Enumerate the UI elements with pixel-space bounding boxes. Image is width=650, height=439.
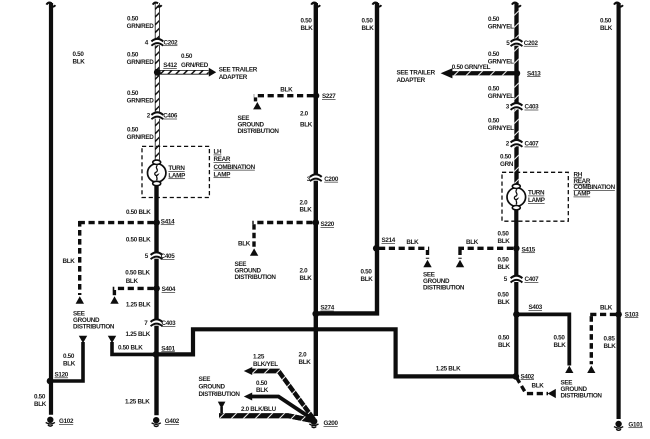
svg-text:BLK: BLK [604, 343, 617, 350]
svg-text:BLK: BLK [600, 304, 613, 311]
svg-text:REAR: REAR [214, 156, 231, 163]
svg-text:SEE TRAILER: SEE TRAILER [219, 67, 258, 74]
svg-text:DISTRIBUTION: DISTRIBUTION [199, 391, 241, 398]
svg-text:GRN/YEL: GRN/YEL [488, 24, 514, 31]
svg-text:S120: S120 [55, 372, 69, 379]
svg-text:LAMP: LAMP [574, 191, 591, 198]
svg-text:GRN: GRN [500, 161, 514, 168]
svg-text:BLK: BLK [406, 239, 419, 246]
svg-text:S401: S401 [161, 345, 175, 352]
svg-text:C405: C405 [161, 253, 176, 260]
svg-text:0.50: 0.50 [488, 16, 500, 23]
svg-text:0.50: 0.50 [256, 380, 268, 387]
svg-text:S220: S220 [321, 221, 335, 228]
svg-text:0.50: 0.50 [361, 269, 373, 276]
svg-text:0.50 BLK: 0.50 BLK [126, 236, 151, 243]
svg-text:BLK: BLK [498, 299, 511, 306]
svg-text:BLK: BLK [238, 240, 251, 247]
svg-text:C202: C202 [164, 39, 179, 46]
svg-text:0.50: 0.50 [34, 394, 46, 401]
svg-text:C403: C403 [525, 104, 540, 111]
svg-text:0.50: 0.50 [498, 230, 510, 237]
svg-text:TURN: TURN [168, 165, 185, 172]
svg-text:0.50: 0.50 [488, 51, 500, 58]
svg-text:LAMP: LAMP [528, 197, 545, 204]
svg-text:GRN/RED: GRN/RED [127, 134, 155, 141]
svg-text:SEE TRAILER: SEE TRAILER [397, 70, 436, 77]
svg-text:2.0: 2.0 [300, 200, 309, 207]
svg-text:0.50: 0.50 [362, 18, 374, 25]
svg-text:BLK: BLK [301, 25, 314, 32]
svg-text:G402: G402 [165, 418, 180, 425]
svg-text:BLK: BLK [126, 278, 139, 285]
svg-text:DISTRIBUTION: DISTRIBUTION [73, 324, 115, 331]
svg-text:0.50: 0.50 [181, 53, 193, 60]
svg-text:0.50: 0.50 [127, 16, 139, 23]
svg-text:LAMP: LAMP [214, 171, 231, 178]
svg-text:GRN/YEL: GRN/YEL [488, 125, 514, 132]
svg-text:G101: G101 [628, 421, 643, 428]
svg-text:LAMP: LAMP [168, 172, 185, 179]
svg-text:0.50: 0.50 [498, 257, 510, 264]
svg-text:0.85: 0.85 [604, 336, 616, 343]
svg-text:BLK/YEL: BLK/YEL [253, 361, 278, 368]
svg-text:TURN: TURN [528, 190, 545, 197]
svg-text:GRN/RED: GRN/RED [127, 23, 155, 30]
svg-text:0.50 GRN/YEL: 0.50 GRN/YEL [452, 64, 491, 71]
svg-text:BLK: BLK [498, 238, 511, 245]
svg-text:BLK: BLK [300, 121, 313, 128]
svg-text:0.50 BLK: 0.50 BLK [125, 269, 150, 276]
svg-text:BLK: BLK [299, 359, 312, 366]
svg-text:0.50: 0.50 [498, 292, 510, 299]
svg-text:BLK: BLK [300, 275, 313, 282]
svg-text:C407: C407 [525, 276, 540, 283]
svg-text:S214: S214 [382, 237, 396, 244]
svg-text:GRN/YEL: GRN/YEL [488, 93, 514, 100]
svg-text:ADAPTER: ADAPTER [397, 77, 426, 84]
svg-text:BLK: BLK [300, 207, 313, 214]
svg-text:GROUND: GROUND [199, 383, 226, 390]
svg-text:GRN/RED: GRN/RED [181, 62, 209, 69]
svg-text:BLK: BLK [498, 342, 511, 349]
svg-text:BLK: BLK [554, 342, 567, 349]
svg-text:ADAPTER: ADAPTER [219, 74, 248, 81]
svg-text:0.50: 0.50 [488, 86, 500, 93]
svg-text:BLK: BLK [73, 59, 86, 66]
svg-text:S404: S404 [162, 286, 176, 293]
svg-text:0.50: 0.50 [127, 90, 139, 97]
svg-text:S415: S415 [522, 246, 536, 253]
svg-text:BLK: BLK [600, 25, 613, 32]
svg-text:BLK: BLK [256, 387, 269, 394]
svg-text:C202: C202 [524, 40, 539, 47]
svg-text:GRN/YEL: GRN/YEL [488, 59, 514, 66]
svg-text:S227: S227 [322, 93, 336, 100]
svg-text:2.0: 2.0 [299, 352, 308, 359]
svg-text:1.25 BLK: 1.25 BLK [125, 398, 150, 405]
svg-text:BLK: BLK [34, 401, 47, 408]
svg-text:LH: LH [214, 149, 223, 156]
svg-text:0.50: 0.50 [554, 335, 566, 342]
svg-text:0.50 BLK: 0.50 BLK [118, 344, 143, 351]
svg-text:DISTRIBUTION: DISTRIBUTION [423, 284, 465, 291]
svg-text:0.50 BLK: 0.50 BLK [126, 209, 151, 216]
svg-text:2.0: 2.0 [300, 111, 309, 118]
svg-text:0.50: 0.50 [127, 127, 139, 134]
svg-text:2.0: 2.0 [300, 268, 309, 275]
svg-text:BLK: BLK [532, 382, 545, 389]
svg-text:0.50: 0.50 [600, 18, 612, 25]
svg-text:2.0 BLK/BLU: 2.0 BLK/BLU [241, 406, 277, 413]
svg-text:C403: C403 [162, 320, 177, 327]
svg-text:GRN/RED: GRN/RED [127, 59, 155, 66]
svg-text:G102: G102 [59, 418, 74, 425]
svg-text:S412: S412 [163, 62, 177, 69]
svg-text:S103: S103 [625, 311, 639, 318]
svg-text:C407: C407 [525, 141, 540, 148]
svg-text:C406: C406 [163, 113, 178, 120]
svg-text:0.50: 0.50 [500, 154, 512, 161]
svg-text:DISTRIBUTION: DISTRIBUTION [238, 128, 280, 135]
svg-text:1.25 BLK: 1.25 BLK [436, 366, 461, 373]
svg-text:SEE: SEE [199, 376, 211, 383]
svg-text:DISTRIBUTION: DISTRIBUTION [235, 274, 277, 281]
svg-text:GRN/RED: GRN/RED [127, 98, 155, 105]
svg-text:BLK: BLK [361, 276, 374, 283]
svg-text:BLK: BLK [498, 264, 511, 271]
svg-text:G200: G200 [324, 420, 339, 427]
svg-text:0.50: 0.50 [63, 353, 75, 360]
svg-text:S402: S402 [521, 373, 535, 380]
svg-text:0.50: 0.50 [127, 52, 139, 59]
svg-text:C200: C200 [324, 176, 339, 183]
svg-text:0.50: 0.50 [301, 18, 313, 25]
svg-text:S413: S413 [527, 70, 541, 77]
svg-text:1.25: 1.25 [253, 354, 265, 361]
svg-text:0.50: 0.50 [73, 51, 85, 58]
svg-text:S274: S274 [320, 305, 334, 312]
svg-text:0.50: 0.50 [488, 118, 500, 125]
svg-text:BLK: BLK [362, 25, 375, 32]
svg-text:COMBINATION: COMBINATION [214, 164, 256, 171]
svg-text:1.25 BLK: 1.25 BLK [126, 301, 151, 308]
svg-text:1.25 BLK: 1.25 BLK [125, 331, 150, 338]
svg-text:BLK: BLK [466, 239, 479, 246]
svg-text:DISTRIBUTION: DISTRIBUTION [561, 393, 603, 400]
svg-text:0.50: 0.50 [498, 335, 510, 342]
svg-text:BLK: BLK [280, 87, 293, 94]
svg-text:BLK: BLK [63, 361, 76, 368]
svg-text:S414: S414 [161, 218, 175, 225]
svg-text:S403: S403 [529, 304, 543, 311]
svg-text:BLK: BLK [63, 258, 76, 265]
